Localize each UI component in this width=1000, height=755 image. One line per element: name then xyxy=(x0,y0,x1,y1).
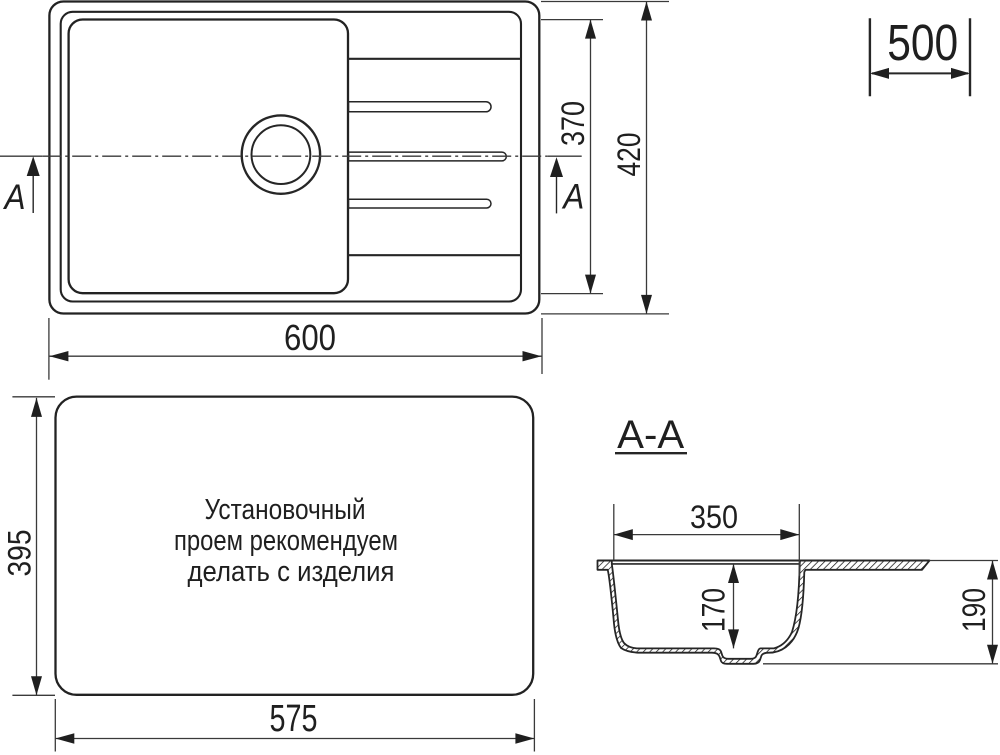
svg-text:A: A xyxy=(562,178,585,217)
svg-text:делать с изделия: делать с изделия xyxy=(188,556,395,588)
svg-text:370: 370 xyxy=(555,101,591,146)
svg-text:575: 575 xyxy=(270,698,318,740)
svg-text:A: A xyxy=(3,178,26,217)
svg-text:A-A: A-A xyxy=(617,413,684,457)
svg-text:190: 190 xyxy=(956,588,992,632)
svg-text:Установочный: Установочный xyxy=(205,494,366,526)
svg-text:350: 350 xyxy=(690,499,738,535)
svg-text:500: 500 xyxy=(887,14,958,71)
svg-text:170: 170 xyxy=(696,588,732,632)
svg-text:600: 600 xyxy=(284,317,336,358)
svg-text:проем рекомендуем: проем рекомендуем xyxy=(174,525,398,557)
svg-text:395: 395 xyxy=(2,530,38,577)
svg-text:420: 420 xyxy=(611,133,647,177)
